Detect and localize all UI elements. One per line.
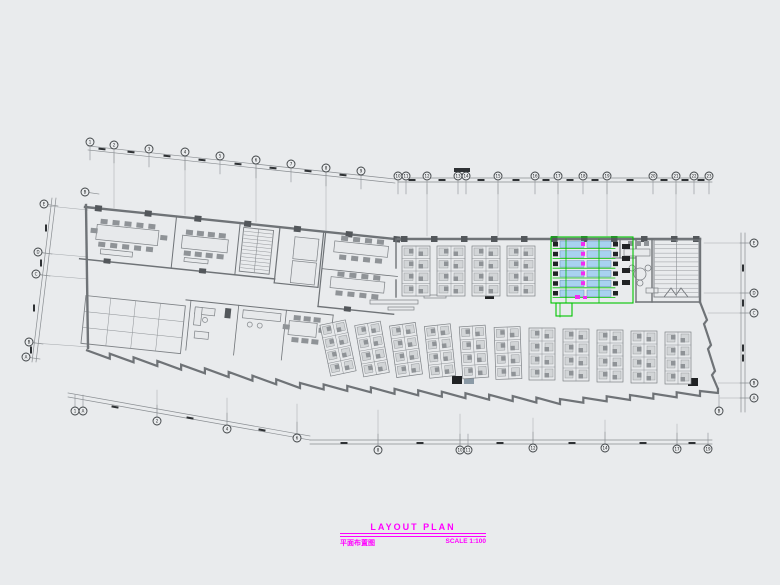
svg-text:14: 14 xyxy=(463,173,469,178)
svg-text:3: 3 xyxy=(148,146,151,151)
svg-text:14: 14 xyxy=(602,445,608,450)
cad-viewport[interactable]: 12345678910111213141516171819202122231A2… xyxy=(0,0,780,585)
svg-text:18: 18 xyxy=(580,173,586,178)
drawing-title: LAYOUT PLAN xyxy=(340,522,486,532)
svg-text:20: 20 xyxy=(650,173,656,178)
svg-text:D: D xyxy=(752,290,755,295)
svg-text:12: 12 xyxy=(424,173,430,178)
svg-text:B: B xyxy=(753,380,756,385)
svg-text:15: 15 xyxy=(495,173,501,178)
svg-text:11: 11 xyxy=(465,447,471,452)
grid-bubble: 22 xyxy=(690,172,698,194)
grid-bubble: A xyxy=(740,394,758,402)
desk-cluster xyxy=(563,329,589,381)
title-underline-thin xyxy=(340,536,486,537)
desk-cluster xyxy=(597,330,623,382)
desk-cluster xyxy=(472,246,500,296)
grid-bubble: D xyxy=(740,289,758,297)
grid-bubble: 17 xyxy=(673,433,681,453)
svg-text:B: B xyxy=(28,339,31,344)
svg-text:4: 4 xyxy=(226,426,229,431)
svg-text:1: 1 xyxy=(74,408,77,413)
svg-text:6: 6 xyxy=(255,157,258,162)
svg-text:C: C xyxy=(753,310,756,315)
svg-text:13: 13 xyxy=(455,173,461,178)
svg-text:9: 9 xyxy=(360,168,363,173)
grid-bubble: 19 xyxy=(603,172,611,194)
grid-bubble: 13 xyxy=(454,172,462,194)
svg-text:4: 4 xyxy=(184,149,187,154)
grid-bubble: 14 xyxy=(601,432,609,452)
grid-bubble: 6 xyxy=(252,156,260,178)
grid-bubble: 23 xyxy=(705,172,713,194)
desk-cluster xyxy=(507,246,535,296)
svg-text:17: 17 xyxy=(674,446,680,451)
grid-bubble: 7 xyxy=(287,160,295,182)
grid-bubbles: EDCBA xyxy=(740,239,758,402)
grid-bubble: 15 xyxy=(494,172,502,194)
left-wing xyxy=(71,204,402,375)
desk-cluster xyxy=(437,246,465,296)
svg-text:12: 12 xyxy=(530,445,536,450)
grid-bubble: 12 xyxy=(529,432,537,452)
desk-cluster xyxy=(459,325,489,379)
svg-text:D: D xyxy=(36,249,39,254)
desk-cluster xyxy=(402,246,430,296)
grid-bubble: 6 xyxy=(293,422,301,442)
grid-bubble: 16 xyxy=(531,172,539,194)
grid-bubble: 19 xyxy=(704,433,712,453)
grid-bubble: 9 xyxy=(357,167,365,189)
svg-text:11: 11 xyxy=(403,173,409,178)
title-underline-thick xyxy=(340,533,486,534)
desk-cluster xyxy=(631,331,657,383)
desk-cluster xyxy=(665,332,691,384)
svg-text:6: 6 xyxy=(296,435,299,440)
desk-cluster xyxy=(390,322,423,377)
svg-text:21: 21 xyxy=(673,173,679,178)
grid-bubble: E xyxy=(740,239,758,247)
selection-highlight xyxy=(551,237,633,317)
grid-bubble: 5 xyxy=(216,152,224,174)
grid-bubble: 12 xyxy=(423,172,431,194)
drawing-title-block: LAYOUT PLAN 平面布置图 SCALE 1:100 xyxy=(340,522,500,548)
svg-text:2: 2 xyxy=(113,142,116,147)
grid-bubble: 20 xyxy=(649,172,657,194)
svg-text:2: 2 xyxy=(156,418,159,423)
drawing-scale: SCALE 1:100 xyxy=(446,538,486,548)
dimension-lines xyxy=(30,146,745,444)
svg-text:10: 10 xyxy=(457,447,463,452)
grid-bubble: 2 xyxy=(110,141,118,163)
desk-cluster xyxy=(355,321,390,377)
svg-text:1: 1 xyxy=(89,139,92,144)
svg-text:A: A xyxy=(753,395,756,400)
svg-text:19: 19 xyxy=(604,173,610,178)
svg-text:B: B xyxy=(84,189,87,194)
grid-bubble: B xyxy=(740,379,758,387)
grid-bubble: 1 xyxy=(86,138,94,160)
grid-bubble: A xyxy=(79,395,87,415)
svg-text:A: A xyxy=(82,408,85,413)
svg-text:22: 22 xyxy=(691,173,697,178)
svg-text:16: 16 xyxy=(532,173,538,178)
svg-text:8: 8 xyxy=(325,165,328,170)
grid-bubble: 21 xyxy=(672,172,680,194)
desk-cluster xyxy=(494,327,522,380)
svg-text:10: 10 xyxy=(395,173,401,178)
svg-text:B: B xyxy=(718,408,721,413)
svg-text:17: 17 xyxy=(555,173,561,178)
floor-plan-drawing: 12345678910111213141516171819202122231A2… xyxy=(0,0,780,585)
stair-right xyxy=(654,240,699,297)
svg-text:5: 5 xyxy=(219,153,222,158)
svg-text:C: C xyxy=(35,271,38,276)
grid-bubble: 4 xyxy=(223,413,231,433)
grid-bubble: B xyxy=(81,188,99,196)
grid-bubbles: 1A2468101112141719B xyxy=(71,395,723,454)
desk-cluster xyxy=(529,328,555,380)
grid-bubbles: 1234567891011121314151617181920212223 xyxy=(86,138,713,194)
svg-text:7: 7 xyxy=(290,161,293,166)
grid-bubble: 17 xyxy=(554,172,562,194)
grid-bubble: C xyxy=(740,309,758,317)
svg-text:23: 23 xyxy=(706,173,712,178)
grid-bubble: 4 xyxy=(181,148,189,170)
desk-cluster xyxy=(424,324,455,378)
grid-bubble: 11 xyxy=(402,172,410,194)
svg-text:19: 19 xyxy=(705,446,711,451)
svg-text:8: 8 xyxy=(377,447,380,452)
extension-lines xyxy=(33,153,748,444)
desk-cluster xyxy=(320,320,356,376)
grid-bubble: 18 xyxy=(579,172,587,194)
drawing-title-chinese: 平面布置图 xyxy=(340,538,375,548)
svg-text:A: A xyxy=(25,354,28,359)
grid-bubble: 14 xyxy=(462,172,470,194)
